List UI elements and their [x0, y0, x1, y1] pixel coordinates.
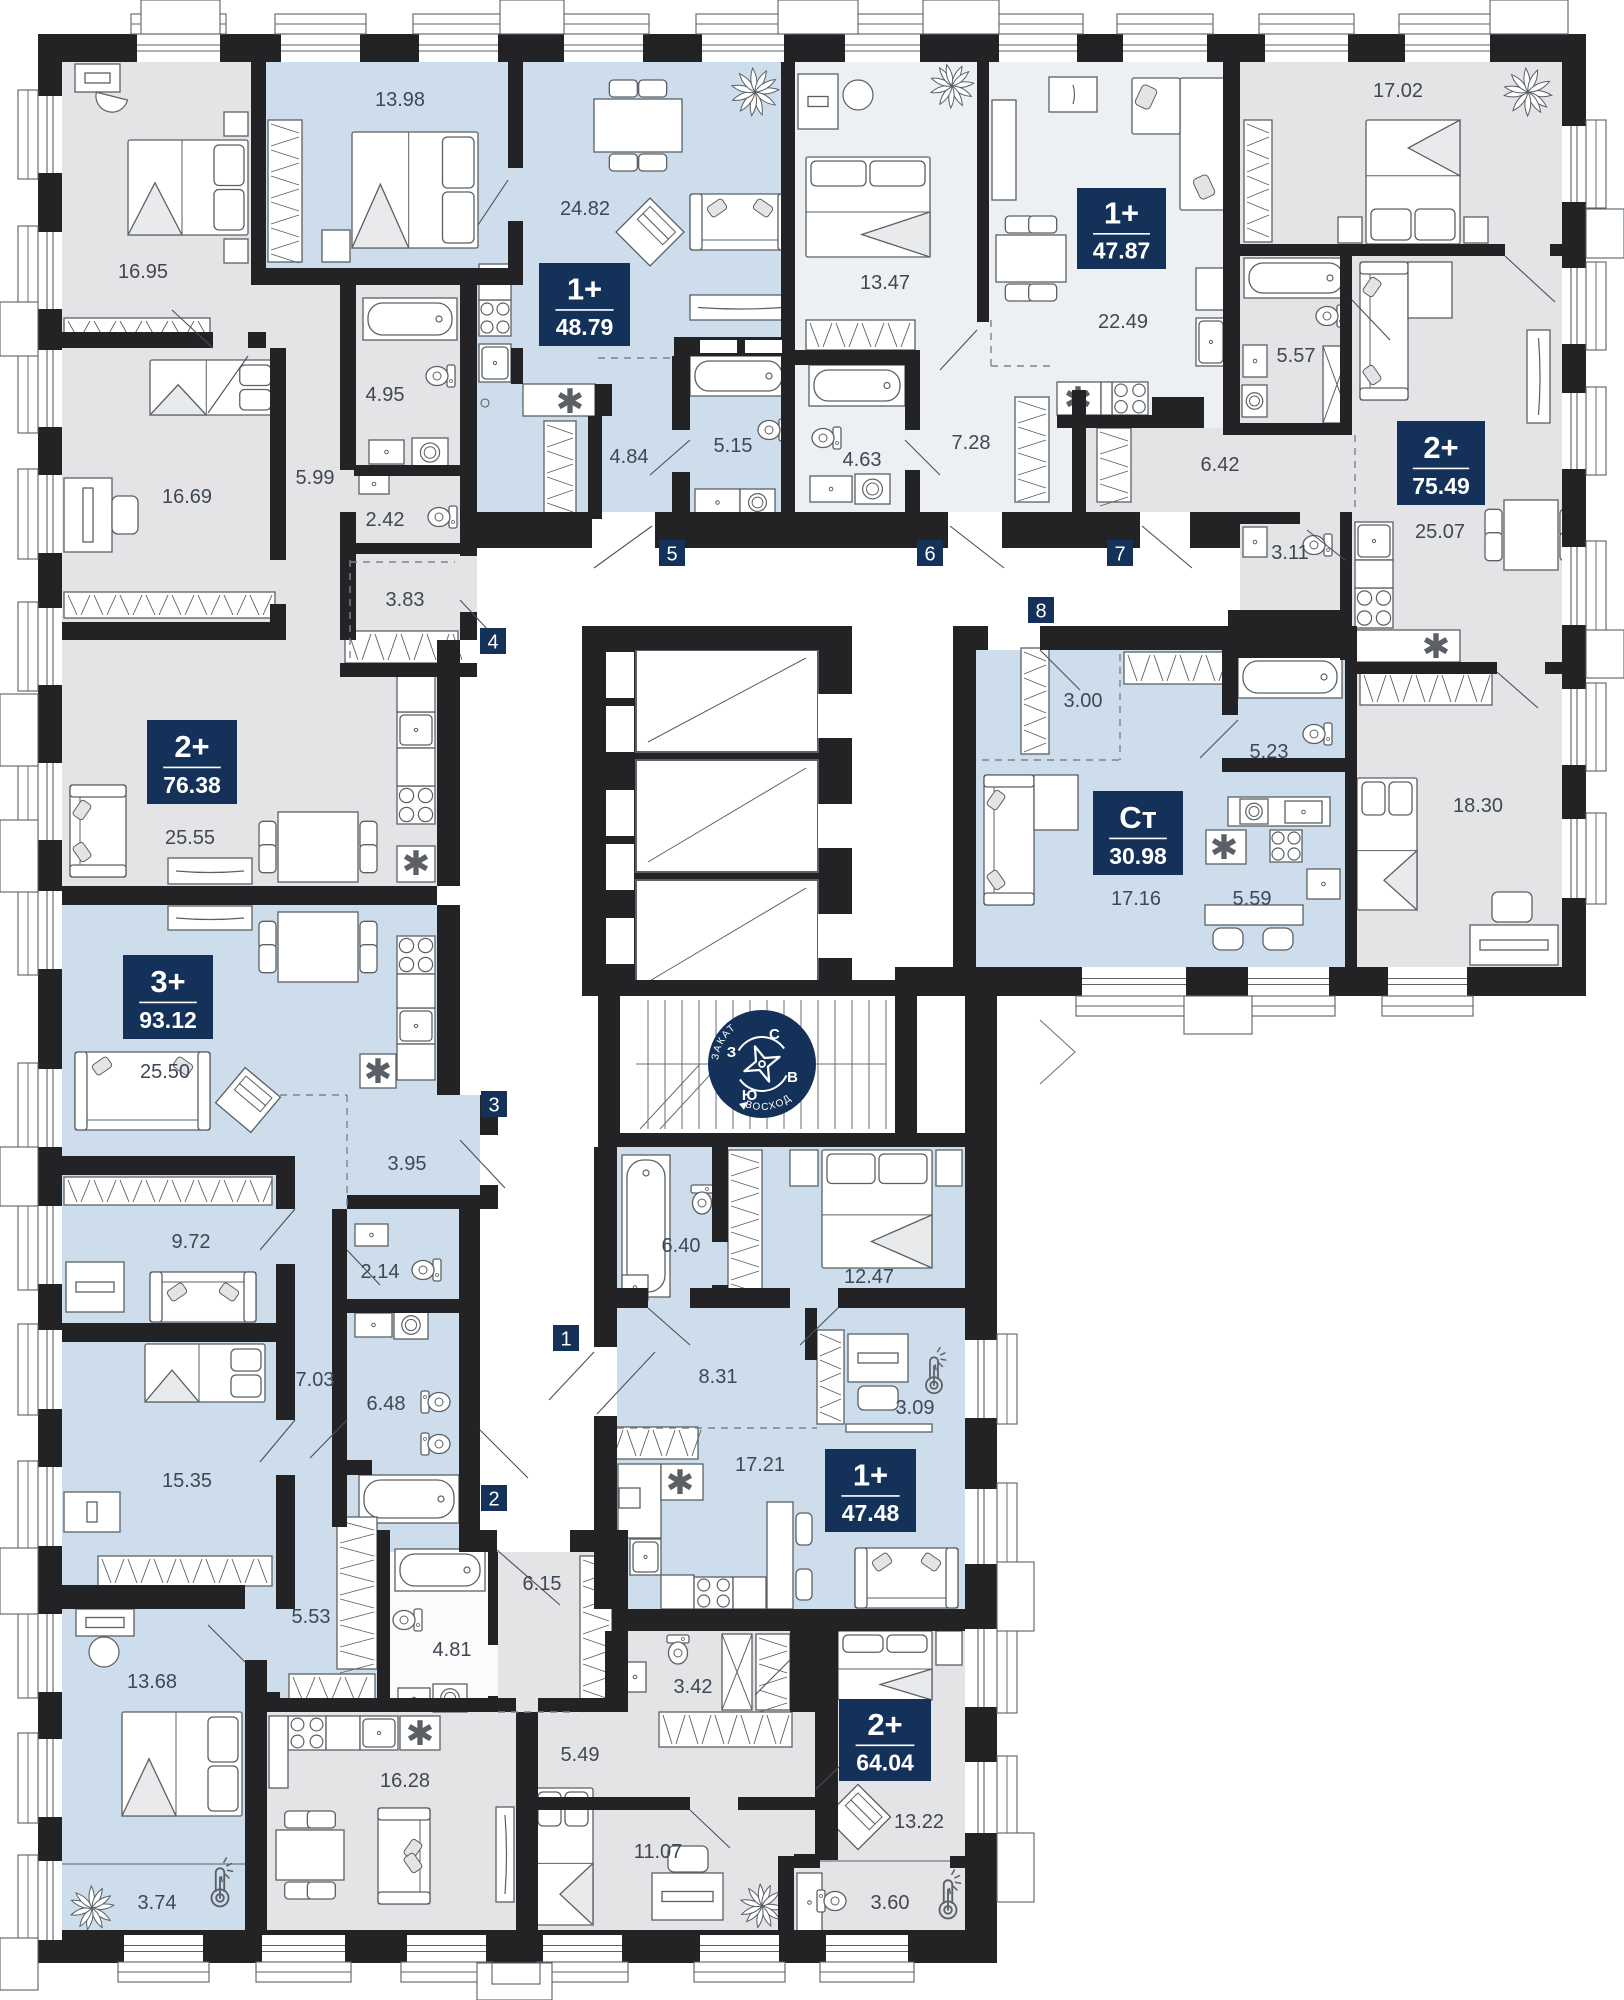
svg-text:75.49: 75.49 [1412, 473, 1470, 499]
svg-text:3.60: 3.60 [871, 1892, 910, 1914]
svg-text:3.09: 3.09 [896, 1397, 935, 1419]
svg-text:17.02: 17.02 [1373, 80, 1423, 102]
svg-text:✱: ✱ [364, 1053, 393, 1091]
svg-text:8.31: 8.31 [699, 1366, 738, 1388]
svg-text:5.49: 5.49 [561, 1744, 600, 1766]
svg-text:4.63: 4.63 [843, 449, 882, 471]
svg-text:2+: 2+ [1423, 430, 1458, 465]
svg-text:✱: ✱ [1210, 829, 1239, 867]
svg-text:3+: 3+ [150, 964, 185, 999]
svg-text:1: 1 [560, 1328, 571, 1350]
svg-text:✱: ✱ [406, 1715, 435, 1753]
svg-text:64.04: 64.04 [856, 1749, 914, 1775]
svg-text:25.07: 25.07 [1415, 521, 1465, 543]
svg-text:25.50: 25.50 [140, 1061, 190, 1083]
svg-text:17.21: 17.21 [735, 1454, 785, 1476]
svg-text:7.03: 7.03 [296, 1369, 335, 1391]
svg-text:22.49: 22.49 [1098, 311, 1148, 333]
svg-text:✱: ✱ [402, 845, 431, 883]
svg-text:6.40: 6.40 [662, 1235, 701, 1257]
svg-text:5.15: 5.15 [714, 435, 753, 457]
svg-text:2.42: 2.42 [366, 509, 405, 531]
svg-text:✱: ✱ [1422, 628, 1451, 666]
svg-text:6.42: 6.42 [1201, 454, 1240, 476]
svg-text:9.72: 9.72 [172, 1231, 211, 1253]
svg-text:5: 5 [666, 543, 677, 565]
svg-text:18.30: 18.30 [1453, 795, 1503, 817]
svg-text:5.53: 5.53 [292, 1606, 331, 1628]
svg-text:✱: ✱ [556, 383, 585, 421]
svg-text:30.98: 30.98 [1109, 843, 1167, 869]
svg-text:7.28: 7.28 [952, 432, 991, 454]
svg-text:16.28: 16.28 [380, 1770, 430, 1792]
svg-text:1+: 1+ [567, 272, 602, 307]
svg-text:25.55: 25.55 [165, 827, 215, 849]
svg-text:5.23: 5.23 [1250, 741, 1289, 763]
svg-text:4: 4 [487, 631, 498, 653]
svg-text:✱: ✱ [666, 1464, 695, 1502]
svg-text:6.48: 6.48 [367, 1393, 406, 1415]
svg-text:8: 8 [1035, 600, 1046, 622]
svg-text:13.68: 13.68 [127, 1671, 177, 1693]
svg-text:15.35: 15.35 [162, 1470, 212, 1492]
svg-text:24.82: 24.82 [560, 198, 610, 220]
svg-text:13.47: 13.47 [860, 272, 910, 294]
svg-text:3.42: 3.42 [674, 1676, 713, 1698]
svg-text:6: 6 [924, 543, 935, 565]
svg-text:В: В [787, 1069, 798, 1086]
svg-text:2+: 2+ [174, 729, 209, 764]
svg-text:6.15: 6.15 [523, 1573, 562, 1595]
svg-text:16.69: 16.69 [162, 486, 212, 508]
svg-text:3.83: 3.83 [386, 589, 425, 611]
svg-text:12.47: 12.47 [844, 1266, 894, 1288]
svg-text:48.79: 48.79 [556, 314, 614, 340]
svg-text:5.99: 5.99 [296, 467, 335, 489]
svg-text:17.16: 17.16 [1111, 888, 1161, 910]
svg-text:4.81: 4.81 [433, 1639, 472, 1661]
svg-text:3: 3 [488, 1094, 499, 1116]
svg-text:16.95: 16.95 [118, 261, 168, 283]
svg-text:2: 2 [488, 1488, 499, 1510]
svg-text:47.48: 47.48 [842, 1500, 900, 1526]
svg-text:5.59: 5.59 [1233, 888, 1272, 910]
svg-text:7: 7 [1114, 543, 1125, 565]
svg-text:1+: 1+ [853, 1458, 888, 1493]
svg-text:13.22: 13.22 [894, 1811, 944, 1833]
svg-text:93.12: 93.12 [139, 1007, 197, 1033]
svg-text:2+: 2+ [867, 1707, 902, 1742]
svg-text:З: З [727, 1044, 736, 1061]
svg-text:1+: 1+ [1104, 196, 1139, 231]
svg-text:4.95: 4.95 [366, 384, 405, 406]
svg-text:13.98: 13.98 [375, 89, 425, 111]
svg-text:С: С [769, 1026, 780, 1043]
svg-text:47.87: 47.87 [1093, 237, 1151, 263]
svg-text:3.11: 3.11 [1271, 542, 1308, 564]
svg-text:2.14: 2.14 [361, 1261, 400, 1283]
svg-text:5.57: 5.57 [1277, 345, 1316, 367]
svg-text:3.74: 3.74 [138, 1892, 177, 1914]
svg-text:3.95: 3.95 [388, 1153, 427, 1175]
svg-text:76.38: 76.38 [163, 772, 221, 798]
svg-text:11.07: 11.07 [634, 1841, 683, 1863]
svg-text:Ст: Ст [1119, 800, 1157, 835]
svg-text:4.84: 4.84 [610, 446, 649, 468]
svg-text:3.00: 3.00 [1064, 690, 1103, 712]
